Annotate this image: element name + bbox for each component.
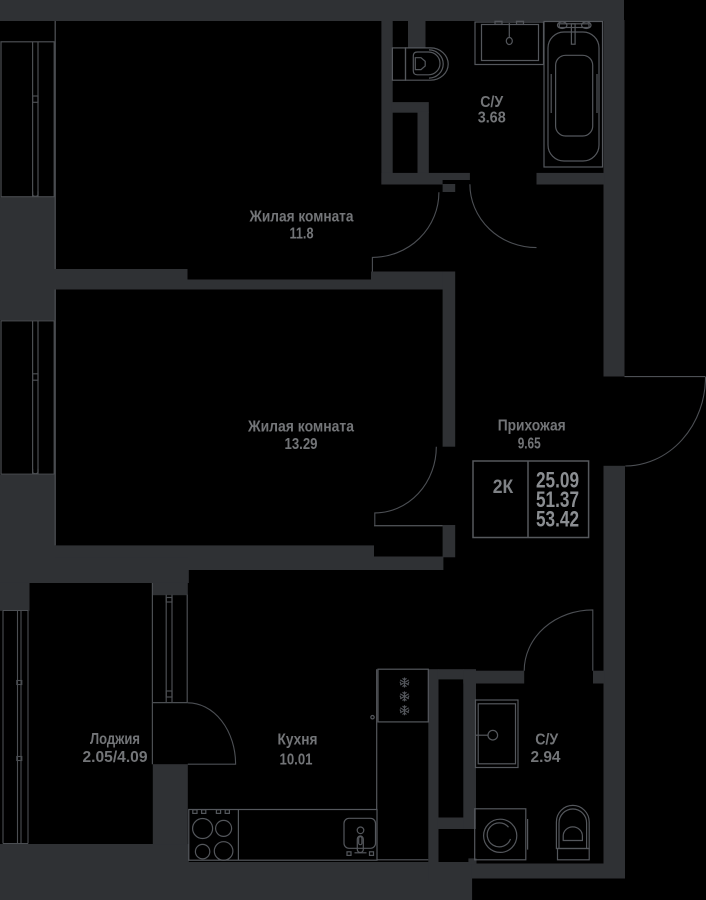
svg-text:С/У: С/У [535,732,559,749]
svg-text:Прихожая: Прихожая [498,418,566,435]
svg-text:3.68: 3.68 [478,110,506,127]
svg-text:2.05/4.09: 2.05/4.09 [83,749,148,766]
svg-text:2К: 2К [493,477,514,498]
svg-text:Жилая комната: Жилая комната [249,209,354,226]
svg-text:53.42: 53.42 [536,507,579,532]
svg-text:11.8: 11.8 [290,226,314,243]
svg-text:10.01: 10.01 [280,752,313,769]
svg-text:9.65: 9.65 [518,436,541,453]
svg-text:С/У: С/У [480,94,504,111]
svg-text:Лоджия: Лоджия [90,731,140,748]
svg-text:Кухня: Кухня [278,732,318,749]
svg-text:2.94: 2.94 [531,749,561,766]
svg-text:13.29: 13.29 [285,436,318,453]
svg-text:Жилая комната: Жилая комната [247,419,354,436]
